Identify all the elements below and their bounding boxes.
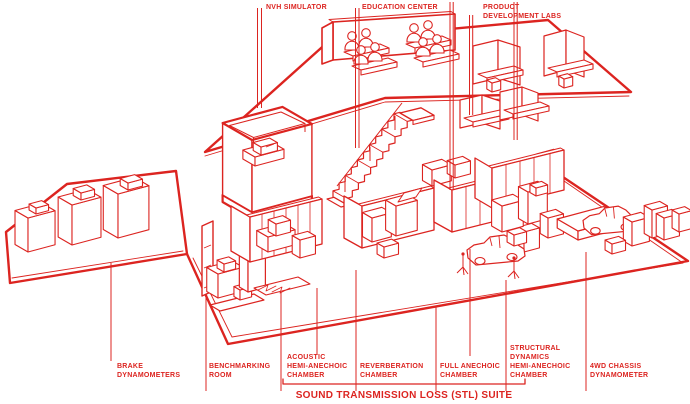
label-reverberation-chamber: REVERBERATION [360, 363, 423, 370]
label-brake-dynamometers: BRAKE [117, 363, 143, 370]
label-structural-dynamics-chamber: STRUCTURAL [510, 345, 561, 352]
label-stl-suite-title: SOUND TRANSMISSION LOSS (STL) SUITE [296, 390, 513, 401]
label-4wd-chassis-dynamometer: DYNAMOMETER [590, 372, 648, 379]
label-reverberation-chamber: CHAMBER [360, 372, 398, 379]
label-benchmarking-room: BENCHMARKING [209, 363, 271, 370]
label-4wd-chassis-dynamometer: 4WD CHASSIS [590, 363, 641, 370]
diagram-canvas: NVH SIMULATOR EDUCATION CENTER PRODUCT D… [0, 0, 690, 404]
label-acoustic-hemi-anechoic-chamber: HEMI-ANECHOIC [287, 363, 347, 370]
label-product-development-labs: PRODUCT [483, 4, 520, 11]
label-nvh-simulator: NVH SIMULATOR [266, 4, 327, 11]
label-product-development-labs: DEVELOPMENT LABS [483, 13, 561, 20]
label-brake-dynamometers: DYNAMOMETERS [117, 372, 180, 379]
label-education-center: EDUCATION CENTER [362, 4, 438, 11]
label-acoustic-hemi-anechoic-chamber: CHAMBER [287, 372, 325, 379]
isometric-line-art [6, 2, 690, 391]
label-full-anechoic-chamber: CHAMBER [440, 372, 478, 379]
label-structural-dynamics-chamber: HEMI-ANECHOIC [510, 363, 570, 370]
label-benchmarking-room: ROOM [209, 372, 232, 379]
label-structural-dynamics-chamber: CHAMBER [510, 372, 548, 379]
facility-isometric-diagram: NVH SIMULATOR EDUCATION CENTER PRODUCT D… [0, 0, 690, 404]
label-full-anechoic-chamber: FULL ANECHOIC [440, 363, 500, 370]
label-structural-dynamics-chamber: DYNAMICS [510, 354, 549, 361]
label-acoustic-hemi-anechoic-chamber: ACOUSTIC [287, 354, 326, 361]
